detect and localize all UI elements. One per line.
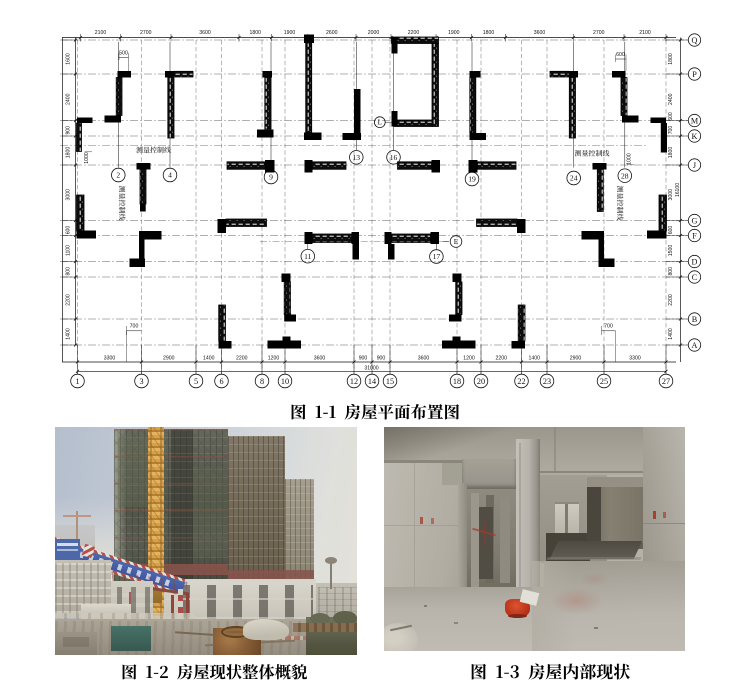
- svg-text:2200: 2200: [236, 355, 248, 361]
- svg-text:F: F: [692, 231, 697, 240]
- svg-text:13: 13: [353, 153, 361, 162]
- svg-text:2700: 2700: [593, 30, 605, 36]
- svg-text:1400: 1400: [668, 328, 674, 340]
- svg-text:1400: 1400: [529, 355, 541, 361]
- svg-text:23: 23: [543, 377, 551, 386]
- svg-text:1000: 1000: [627, 153, 633, 165]
- svg-text:700: 700: [668, 126, 674, 135]
- svg-text:2200: 2200: [496, 355, 508, 361]
- svg-text:A: A: [692, 341, 698, 350]
- svg-text:10: 10: [281, 377, 289, 386]
- svg-text:16: 16: [390, 153, 398, 162]
- svg-text:800: 800: [668, 267, 674, 276]
- svg-text:3600: 3600: [418, 355, 430, 361]
- svg-text:1100: 1100: [66, 245, 72, 256]
- svg-text:500: 500: [119, 51, 128, 57]
- svg-text:1000: 1000: [84, 152, 90, 164]
- svg-text:2200: 2200: [668, 294, 674, 306]
- svg-text:1800: 1800: [668, 53, 674, 65]
- svg-text:P: P: [692, 70, 697, 79]
- svg-text:1200: 1200: [463, 355, 475, 361]
- svg-text:2900: 2900: [570, 355, 582, 361]
- svg-text:2200: 2200: [408, 30, 420, 36]
- svg-text:24: 24: [570, 174, 578, 183]
- svg-text:1800: 1800: [483, 30, 495, 36]
- svg-text:1500: 1500: [668, 245, 674, 257]
- svg-text:8: 8: [260, 377, 264, 386]
- svg-text:3000: 3000: [668, 189, 674, 201]
- svg-text:700: 700: [130, 324, 139, 330]
- svg-text:3300: 3300: [104, 355, 116, 361]
- svg-text:4: 4: [168, 171, 172, 180]
- svg-text:600: 600: [66, 226, 72, 235]
- svg-text:G: G: [692, 216, 698, 225]
- svg-text:1400: 1400: [203, 355, 215, 361]
- svg-text:1900: 1900: [284, 30, 296, 36]
- svg-text:22: 22: [517, 377, 525, 386]
- svg-text:900: 900: [66, 126, 72, 135]
- svg-text:800: 800: [66, 267, 72, 276]
- svg-text:2900: 2900: [163, 355, 175, 361]
- svg-text:2400: 2400: [66, 93, 72, 105]
- svg-text:900: 900: [377, 355, 386, 361]
- svg-text:2600: 2600: [326, 30, 338, 36]
- svg-text:18: 18: [453, 377, 461, 386]
- svg-text:3: 3: [139, 377, 143, 386]
- svg-text:9: 9: [269, 173, 273, 182]
- svg-text:2700: 2700: [140, 30, 152, 36]
- svg-text:900: 900: [359, 355, 368, 361]
- svg-text:L: L: [378, 119, 382, 127]
- svg-text:3300: 3300: [629, 355, 641, 361]
- svg-text:600: 600: [616, 52, 625, 58]
- svg-text:3600: 3600: [314, 355, 326, 361]
- svg-text:700: 700: [604, 324, 613, 330]
- svg-text:16100: 16100: [675, 183, 681, 197]
- svg-text:3600: 3600: [534, 30, 546, 36]
- svg-text:19: 19: [468, 175, 476, 184]
- svg-text:25: 25: [600, 377, 608, 386]
- svg-text:3000: 3000: [66, 189, 72, 201]
- svg-text:5: 5: [194, 377, 198, 386]
- svg-text:1800: 1800: [66, 147, 72, 159]
- svg-text:11: 11: [304, 252, 312, 261]
- svg-text:M: M: [691, 116, 699, 125]
- svg-text:E: E: [454, 238, 459, 246]
- svg-text:1600: 1600: [66, 53, 72, 65]
- svg-text:2200: 2200: [66, 294, 72, 306]
- svg-text:12: 12: [350, 377, 358, 386]
- svg-text:J: J: [693, 161, 697, 170]
- svg-text:31000: 31000: [364, 366, 378, 372]
- svg-text:14: 14: [368, 377, 376, 386]
- svg-text:15: 15: [386, 377, 394, 386]
- svg-text:C: C: [692, 273, 698, 282]
- svg-text:2100: 2100: [639, 30, 651, 36]
- svg-text:3600: 3600: [199, 30, 211, 36]
- svg-text:2100: 2100: [95, 30, 107, 36]
- svg-text:6: 6: [219, 377, 223, 386]
- svg-text:27: 27: [662, 377, 670, 386]
- svg-text:1400: 1400: [66, 328, 72, 340]
- svg-text:600: 600: [668, 226, 674, 235]
- svg-text:20: 20: [477, 377, 485, 386]
- svg-text:K: K: [692, 132, 698, 141]
- svg-text:2: 2: [116, 171, 120, 180]
- svg-text:600: 600: [668, 112, 674, 121]
- svg-text:2000: 2000: [368, 30, 380, 36]
- svg-text:17: 17: [433, 252, 441, 261]
- svg-text:1: 1: [75, 377, 79, 386]
- svg-text:D: D: [692, 257, 698, 266]
- svg-text:2400: 2400: [668, 93, 674, 105]
- svg-text:1200: 1200: [268, 355, 280, 361]
- svg-text:28: 28: [621, 171, 629, 180]
- svg-text:Q: Q: [692, 36, 698, 45]
- svg-text:1800: 1800: [250, 30, 262, 36]
- svg-text:1800: 1800: [668, 147, 674, 159]
- svg-text:B: B: [692, 315, 698, 324]
- svg-text:1900: 1900: [448, 30, 460, 36]
